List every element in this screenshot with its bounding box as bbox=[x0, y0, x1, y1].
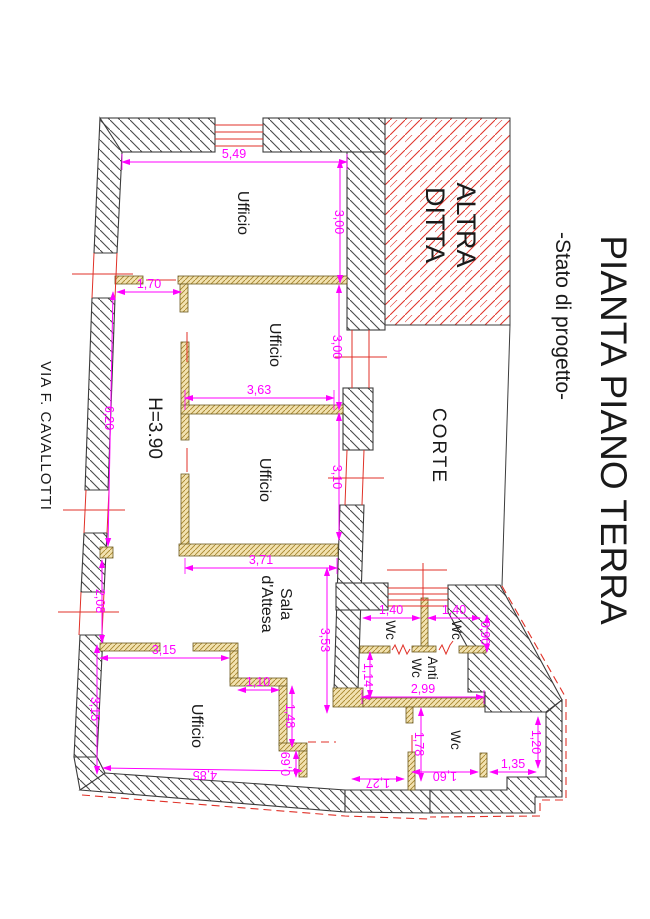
dim-step-width: 1,10 bbox=[246, 675, 270, 689]
title-block: PIANTA PIANO TERRA -Stato di progetto- bbox=[551, 232, 634, 625]
page-title: PIANTA PIANO TERRA bbox=[593, 235, 634, 625]
room-label-wc-left: Wc bbox=[383, 620, 398, 640]
window-left-3 bbox=[58, 592, 119, 635]
dim-wc-left-width: 1,40 bbox=[379, 603, 403, 617]
zone-label-courtyard: CORTE bbox=[428, 408, 449, 484]
dim-office3-width: 3,71 bbox=[249, 553, 273, 567]
door-squiggle-wc-right bbox=[439, 641, 453, 654]
room-label-anti-wc: AntiWc bbox=[409, 656, 440, 679]
room-label-office-1: Ufficio bbox=[234, 191, 251, 235]
dim-office2-depth: 3,00 bbox=[330, 335, 344, 359]
dim-step-depth: 1,48 bbox=[283, 704, 297, 728]
room-label-office-2: Ufficio bbox=[266, 323, 283, 367]
window-top bbox=[215, 125, 263, 146]
dim-step-small: 0,69 bbox=[279, 752, 293, 776]
dim-wc-large-bottom-right: 1,35 bbox=[501, 757, 525, 771]
room-label-office-4: Ufficio bbox=[188, 704, 205, 748]
dim-top-width: 5,49 bbox=[222, 147, 246, 161]
dim-office4-bottom: 4,85 bbox=[193, 768, 217, 782]
dim-office1-depth: 3,00 bbox=[332, 210, 346, 234]
room-label-wc-large: Wc bbox=[448, 730, 463, 750]
dim-wc-large-right: 1,20 bbox=[529, 730, 543, 754]
dim-office2-width: 3,63 bbox=[247, 383, 271, 397]
dim-antiwc-left: 1,14 bbox=[361, 663, 375, 687]
door-squiggle-wc-left bbox=[392, 645, 410, 654]
dim-wc-large-bottom: 1,60 bbox=[433, 769, 457, 783]
wall-left-3 bbox=[81, 533, 107, 592]
wall-courtyard-pillar bbox=[343, 388, 373, 450]
zone-label-other-company: ALTRADITTA bbox=[420, 182, 481, 267]
room-label-office-3: Ufficio bbox=[256, 458, 273, 502]
floor-plan-page: 5,49 3,00 1,70 6,20 3,63 3,00 3,10 3,71 … bbox=[0, 0, 650, 919]
dim-wc-right-width: 1,40 bbox=[442, 603, 466, 617]
dim-wc-large-bottom-left: 1,27 bbox=[366, 776, 390, 790]
wall-other-company-divider bbox=[347, 152, 385, 330]
dim-office4-width-top: 3,15 bbox=[152, 643, 176, 657]
wall-top-right bbox=[263, 118, 385, 152]
dim-corridor-left: 2,08 bbox=[93, 589, 107, 613]
ceiling-height-note: H=3.90 bbox=[144, 397, 165, 459]
floor-plan-drawing: 5,49 3,00 1,70 6,20 3,63 3,00 3,10 3,71 … bbox=[0, 0, 650, 919]
room-label-wc-right: Wc bbox=[449, 620, 464, 640]
dim-office4-left: 3,15 bbox=[88, 697, 102, 721]
window-left-2 bbox=[63, 490, 125, 533]
page-subtitle: -Stato di progetto- bbox=[551, 232, 574, 400]
dim-door-offset: 1,70 bbox=[137, 277, 161, 291]
wall-bottom-right bbox=[345, 790, 430, 813]
window-wc bbox=[387, 563, 448, 606]
window-left-1 bbox=[72, 253, 133, 298]
dim-left-side: 6,20 bbox=[102, 406, 116, 430]
street-label: VIA F. CAVALLOTTI bbox=[37, 361, 54, 511]
wall-southeast-corner bbox=[430, 700, 562, 813]
dim-wc-depth: 0,90 bbox=[478, 621, 492, 645]
dim-office3-depth: 3,10 bbox=[330, 465, 344, 489]
room-label-waiting: Salad'Attesa bbox=[258, 575, 294, 632]
dim-waiting-depth: 3,53 bbox=[318, 628, 332, 652]
dim-antiwc-width: 2,99 bbox=[411, 682, 435, 696]
dim-wc-large-depth: 1,78 bbox=[412, 732, 426, 756]
